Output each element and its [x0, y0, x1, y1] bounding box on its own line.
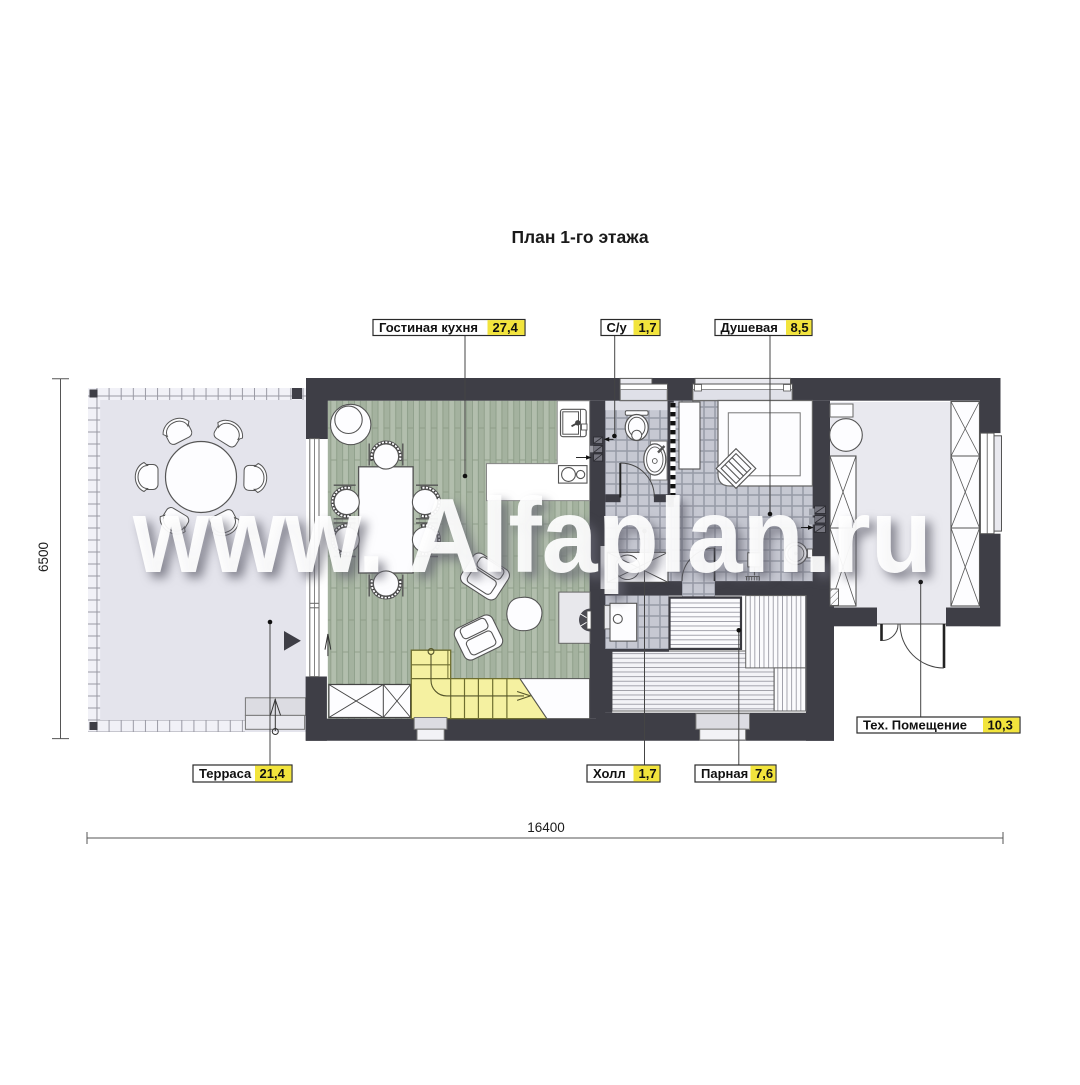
svg-text:С/у: С/у: [607, 320, 628, 335]
svg-text:Холл: Холл: [593, 766, 626, 781]
svg-text:Тех. Помещение: Тех. Помещение: [863, 718, 967, 733]
svg-text:План 1-го этажа: План 1-го этажа: [511, 227, 648, 247]
svg-text:10,3: 10,3: [988, 718, 1013, 733]
svg-text:16400: 16400: [527, 820, 565, 835]
svg-text:Гостиная кухня: Гостиная кухня: [379, 320, 478, 335]
svg-text:8,5: 8,5: [791, 320, 809, 335]
svg-text:1,7: 1,7: [639, 320, 657, 335]
svg-text:www.: www.: [132, 477, 385, 595]
svg-text:Парная: Парная: [701, 766, 748, 781]
svg-text:1,7: 1,7: [639, 766, 657, 781]
svg-text:Терраса: Терраса: [199, 766, 252, 781]
svg-text:27,4: 27,4: [493, 320, 519, 335]
svg-text:6500: 6500: [36, 542, 51, 572]
svg-text:7,6: 7,6: [755, 766, 773, 781]
svg-text:Alfaplan.ru: Alfaplan.ru: [408, 477, 932, 595]
svg-text:Душевая: Душевая: [721, 320, 778, 335]
svg-text:21,4: 21,4: [260, 766, 286, 781]
